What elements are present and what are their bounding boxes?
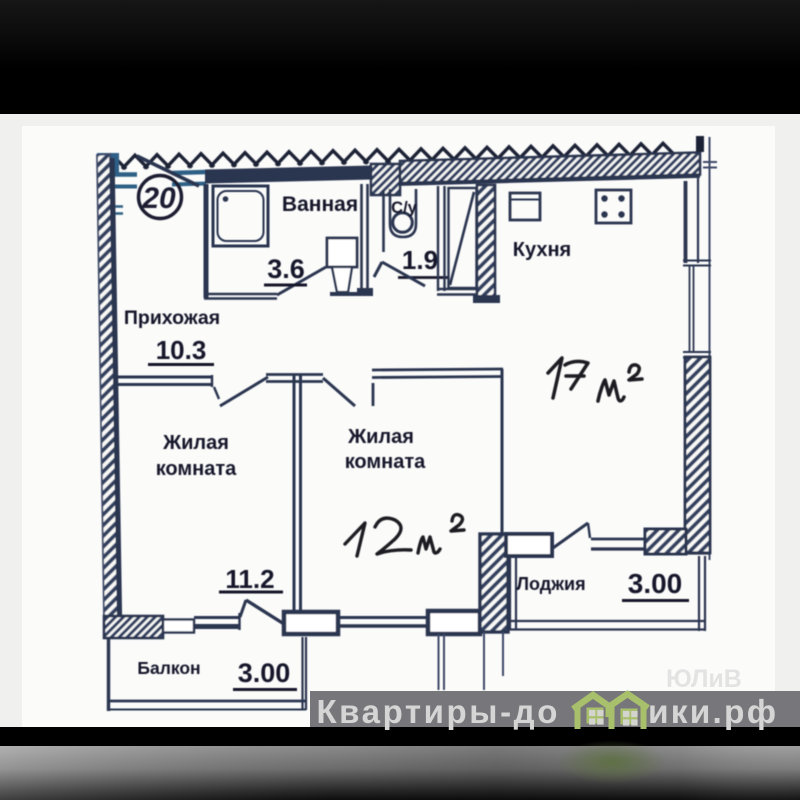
svg-text:Ванная: Ванная bbox=[282, 193, 358, 216]
svg-text:Лоджия: Лоджия bbox=[516, 574, 585, 594]
svg-text:ЮЛиВ: ЮЛиВ bbox=[666, 665, 742, 693]
svg-text:Прихожая: Прихожая bbox=[124, 307, 220, 329]
svg-text:Жилая: Жилая bbox=[162, 432, 229, 454]
svg-text:ики.рф: ики.рф bbox=[648, 694, 778, 731]
svg-text:20: 20 bbox=[141, 182, 176, 215]
svg-text:3.00: 3.00 bbox=[238, 658, 291, 688]
svg-text:комната: комната bbox=[156, 458, 237, 480]
svg-text:1.9: 1.9 bbox=[402, 245, 438, 275]
svg-text:3.6: 3.6 bbox=[267, 254, 305, 284]
svg-text:Квартиры-до: Квартиры-до bbox=[316, 693, 560, 730]
svg-text:комната: комната bbox=[345, 451, 426, 473]
svg-text:3.00: 3.00 bbox=[628, 568, 683, 599]
svg-text:11.2: 11.2 bbox=[225, 564, 274, 594]
svg-text:Балкон: Балкон bbox=[137, 658, 200, 678]
svg-text:10.3: 10.3 bbox=[156, 335, 207, 365]
svg-text:Жилая: Жилая bbox=[347, 426, 414, 448]
svg-text:Кухня: Кухня bbox=[513, 239, 571, 261]
svg-text:С/у: С/у bbox=[391, 199, 418, 217]
